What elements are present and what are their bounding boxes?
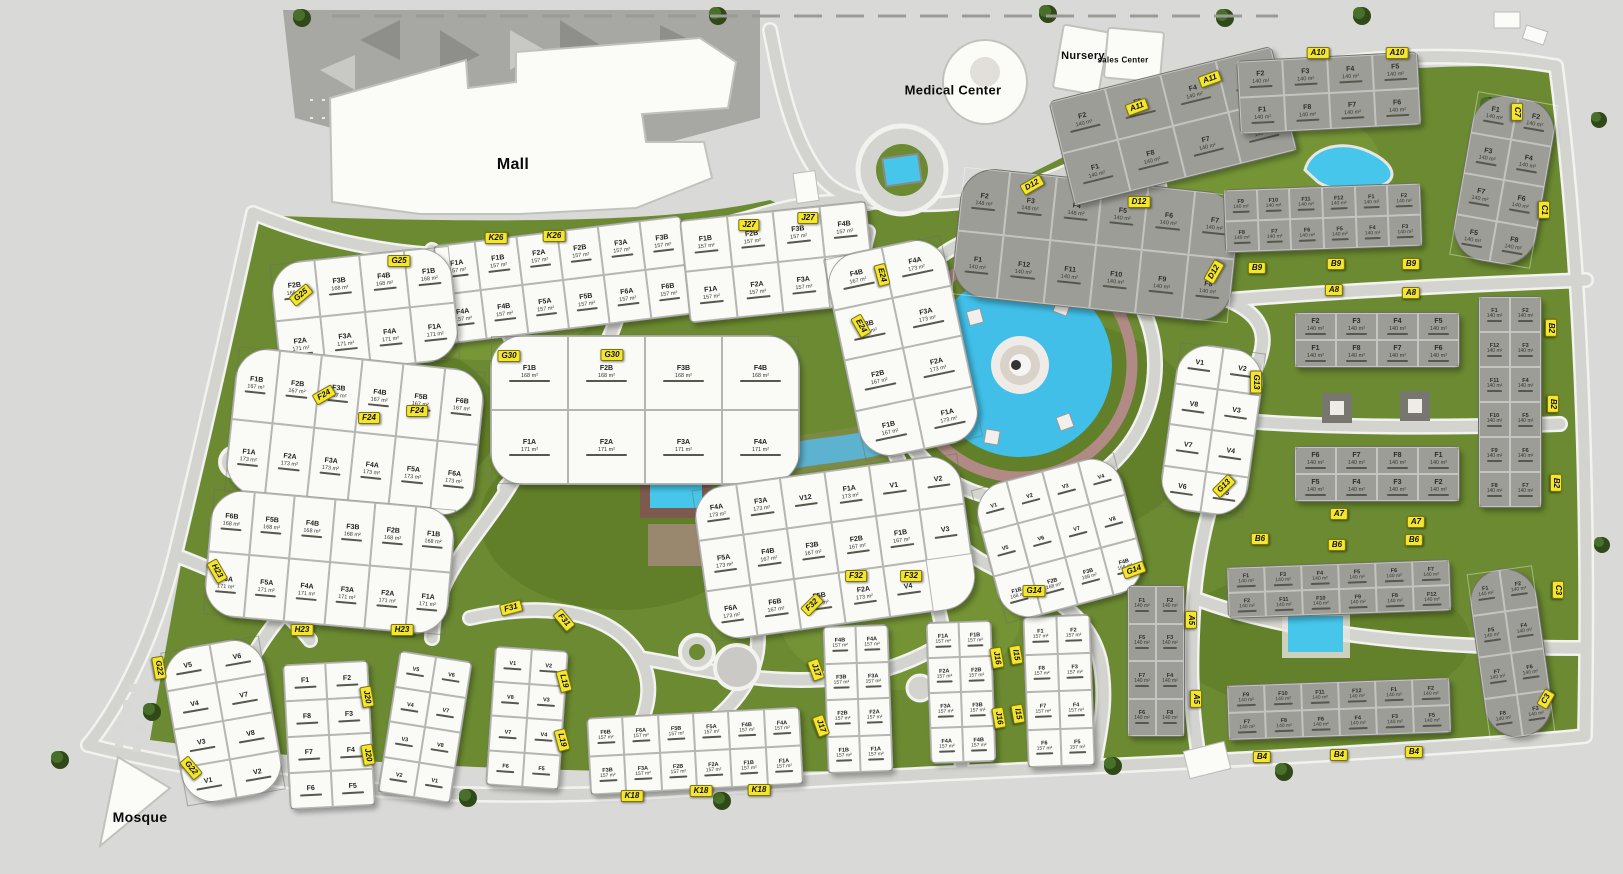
zone-marker-B4[interactable]: B4 — [1405, 746, 1423, 758]
unit-cell: F6140 m² — [1302, 709, 1340, 737]
unit-name: F7 — [305, 748, 314, 756]
unit-name: V3 — [941, 526, 951, 535]
unit-area: 140 m² — [1107, 278, 1125, 286]
unit-cell: F2140 m² — [1387, 184, 1421, 216]
unit-area: 140 m² — [1162, 716, 1178, 721]
roof-strip — [1066, 676, 1083, 679]
roof-strip — [1387, 494, 1408, 496]
zone-marker-F32[interactable]: F32 — [845, 570, 867, 582]
zone-marker-B9[interactable]: B9 — [1248, 262, 1266, 274]
roof-strip — [1387, 467, 1408, 469]
cluster-B6[interactable]: F1140 m²F3140 m²F4140 m²F5140 m²F6140 m²… — [1226, 559, 1452, 619]
roof-strip — [632, 739, 650, 742]
unit-name: F4 — [347, 746, 356, 754]
roof-strip — [1266, 240, 1283, 243]
unit-area: 157 m² — [739, 728, 755, 734]
unit-cell: F5140 m² — [1510, 402, 1541, 437]
unit-cell: F1B157 m² — [827, 735, 860, 773]
unit-area: 140 m² — [1159, 219, 1177, 227]
unit-cell: F1B168 m² — [410, 506, 456, 572]
unit-area: 140 m² — [1254, 114, 1271, 121]
roof-strip — [669, 775, 687, 778]
unit-name: F8 — [303, 712, 312, 720]
unit-cell: F4140 m² — [1504, 139, 1552, 187]
unit-cell: F3A157 m² — [929, 692, 962, 728]
unit-area: 157 m² — [937, 674, 953, 680]
unit-cell: F3140 m² — [1388, 215, 1422, 247]
unit-cell: F8140 m² — [1265, 710, 1303, 738]
roof-strip — [389, 778, 408, 783]
unit-cell: F6157 m² — [1027, 728, 1061, 767]
roof-strip — [338, 719, 360, 722]
unit-area: 157 m² — [671, 769, 687, 775]
cluster-K18[interactable]: F6B157 m²F6A157 m²F5B157 m²F5A157 m²F4B1… — [586, 706, 804, 795]
unit-cell: F2A171 m² — [568, 410, 645, 484]
cluster-G30[interactable]: F1B168 m²F2B168 m²F3B168 m²F4B168 m²F1A1… — [490, 335, 800, 485]
unit-name: F5 — [1434, 318, 1442, 326]
cluster-A10[interactable]: F2140 m²F3140 m²F4140 m²F5140 m²F1140 m²… — [1236, 51, 1422, 134]
fountain-pool — [882, 154, 922, 187]
roof-strip — [1224, 414, 1247, 419]
zone-marker-G14[interactable]: G14 — [1022, 585, 1045, 597]
unit-area: 157 m² — [938, 709, 954, 715]
roof-strip — [1397, 235, 1414, 238]
roof-strip — [1428, 467, 1449, 469]
unit-cell: F3140 m² — [1464, 132, 1512, 180]
unit-cell: V5 — [395, 651, 436, 692]
roof-strip — [1396, 204, 1413, 207]
unit-area: 157 m² — [967, 638, 983, 644]
roof-strip — [897, 591, 921, 596]
roof-strip — [1348, 606, 1367, 609]
unit-name: V8 — [507, 695, 514, 701]
roof-strip — [599, 779, 617, 782]
unit-area: 140 m² — [1518, 349, 1534, 354]
roof-strip — [865, 685, 882, 688]
zone-marker-K18[interactable]: K18 — [621, 790, 644, 802]
zone-marker-A8[interactable]: A8 — [1325, 284, 1343, 296]
unit-cell: F2140 m² — [1412, 678, 1450, 706]
unit-cell: F4B168 m² — [722, 336, 799, 410]
unit-name: F2A — [600, 439, 613, 447]
unit-name: F8 — [1393, 452, 1401, 460]
unit-area: 140 m² — [1342, 73, 1359, 80]
zone-marker-A8[interactable]: A8 — [1402, 287, 1420, 299]
unit-name: V8 — [246, 730, 256, 739]
cluster-B2[interactable]: F1140 m²F2140 m²F12140 m²F3140 m²F11140 … — [1478, 296, 1542, 508]
unit-cell: V2 — [378, 756, 419, 797]
unit-cell: F3A157 m² — [598, 221, 645, 275]
unit-cell: F6A173 m² — [430, 441, 479, 518]
unit-area: 140 m² — [1162, 604, 1178, 609]
unit-cell: F5A157 m² — [522, 280, 569, 334]
unit-area: 171 m² — [675, 447, 692, 453]
unit-cell: F1157 m² — [1023, 616, 1057, 655]
roof-strip — [422, 545, 443, 549]
roof-strip — [868, 758, 885, 761]
unit-area: 168 m² — [598, 373, 615, 379]
unit-area: 140 m² — [1162, 679, 1178, 684]
zone-marker-G30[interactable]: G30 — [600, 349, 623, 361]
unit-name: F8 — [1352, 345, 1360, 353]
unit-cell: F3B157 m² — [589, 755, 626, 795]
roof-strip — [703, 736, 721, 739]
unit-area: 140 m² — [1487, 454, 1503, 459]
unit-cell: V1 — [869, 459, 920, 516]
unit-cell: F6B157 m² — [587, 717, 624, 757]
roof-strip — [968, 679, 985, 682]
unit-name: F7 — [1352, 452, 1360, 460]
unit-name: V8 — [1189, 400, 1199, 409]
unit-cell: F5140 m² — [1323, 217, 1357, 249]
roof-strip — [1251, 120, 1275, 123]
unit-cell: F2140 m² — [1510, 297, 1541, 332]
unit-cell: F2B157 m² — [960, 656, 993, 692]
unit-name: V5 — [183, 662, 193, 671]
unit-area: 140 m² — [1487, 489, 1503, 494]
zone-marker-C7[interactable]: C7 — [1511, 103, 1523, 121]
roof-strip — [663, 454, 704, 456]
unit-cell: F6140 m² — [1128, 699, 1156, 737]
cluster-J17[interactable]: F4B157 m²F4A157 m²F3B157 m²F3A157 m²F2B1… — [822, 624, 893, 774]
unit-area: 157 m² — [1037, 747, 1053, 753]
unit-cell: F6 — [486, 750, 524, 787]
unit-cell: F6140 m² — [1374, 88, 1421, 126]
unit-cell: F11140 m² — [1301, 682, 1339, 710]
zone-marker-A7[interactable]: A7 — [1407, 516, 1425, 528]
unit-area: 140 m² — [1307, 326, 1324, 332]
unit-name: V4 — [406, 702, 414, 709]
roof-strip — [971, 749, 988, 752]
roof-strip — [1487, 355, 1503, 357]
roof-strip — [1428, 494, 1449, 496]
roof-strip — [1305, 333, 1326, 335]
unit-name: F1 — [301, 676, 310, 684]
zone-marker-B6[interactable]: B6 — [1405, 534, 1423, 546]
zone-marker-G25[interactable]: G25 — [387, 255, 410, 267]
zone-marker-A10[interactable]: A10 — [1307, 47, 1330, 59]
zone-marker-K18[interactable]: K18 — [690, 785, 713, 797]
roof-strip — [1487, 320, 1503, 322]
unit-cell: F11140 m² — [1043, 240, 1096, 308]
unit-area: 157 m² — [1068, 708, 1084, 714]
roof-strip — [425, 783, 444, 788]
unit-cell: F7140 m² — [1456, 173, 1504, 221]
unit-cell: V1 — [1175, 342, 1223, 389]
roof-strip — [738, 734, 756, 737]
unit-cell: F7140 m² — [1228, 712, 1266, 740]
roof-strip — [832, 650, 849, 653]
roof-strip — [1518, 390, 1534, 392]
unit-name: F3A — [677, 439, 690, 447]
unit-cell: F4A157 m² — [930, 727, 963, 763]
unit-cell: F4140 m² — [1356, 216, 1390, 248]
unit-area: 140 m² — [1389, 106, 1406, 113]
cluster-A8[interactable]: F2140 m²F3140 m²F4140 m²F5140 m²F1140 m²… — [1294, 312, 1460, 368]
pool-southeast — [1288, 616, 1343, 652]
unit-area: 157 m² — [1067, 670, 1083, 676]
unit-cell: F4A171 m² — [722, 410, 799, 484]
unit-cell: F6B168 m² — [208, 489, 254, 555]
roof-strip — [1518, 320, 1534, 322]
cluster-L19[interactable]: V1V2V8V3V7V4F6F5 — [485, 646, 569, 791]
zone-marker-B2[interactable]: B2 — [1550, 474, 1562, 492]
unit-area: 140 m² — [1348, 460, 1365, 466]
roof-strip — [537, 704, 556, 707]
unit-cell: F7140 m² — [1510, 472, 1541, 507]
unit-cell: F5B157 m² — [563, 275, 610, 329]
roof-strip — [836, 759, 853, 762]
unit-cell: F2140 m² — [1295, 313, 1336, 340]
unit-name: F5 — [348, 782, 357, 790]
cluster-I15[interactable]: F1157 m²F2157 m²F8157 m²F3157 m²F7157 m²… — [1022, 614, 1095, 768]
roof-strip — [220, 527, 241, 531]
unit-cell: F5140 m² — [1295, 474, 1336, 501]
cluster-H23[interactable]: F6B168 m²F5B168 m²F4B168 m²F3B168 m²F2B1… — [202, 488, 457, 637]
roof-strip — [867, 721, 884, 724]
unit-name: V3 — [197, 738, 207, 747]
roof-strip — [1311, 582, 1330, 585]
zone-marker-J27[interactable]: J27 — [738, 219, 759, 231]
unit-cell: F4A157 m² — [764, 708, 801, 748]
unit-cell: F8140 m² — [1181, 255, 1234, 323]
unit-name: V1 — [203, 777, 213, 786]
zone-marker-K26[interactable]: K26 — [485, 232, 508, 244]
unit-area: 140 m² — [1307, 460, 1324, 466]
unit-cell: F5 — [522, 752, 560, 789]
unit-area: 140 m² — [1487, 314, 1503, 319]
zone-marker-B6[interactable]: B6 — [1328, 539, 1346, 551]
unit-area: 140 m² — [1487, 419, 1503, 424]
roof-strip — [1176, 449, 1199, 454]
unit-area: 140 m² — [1350, 600, 1366, 606]
unit-area: 157 m² — [866, 679, 882, 685]
zone-marker-B2[interactable]: B2 — [1547, 395, 1559, 413]
roof-strip — [1135, 610, 1149, 612]
unit-name: V2 — [1237, 365, 1247, 374]
roof-strip — [406, 673, 425, 678]
zone-marker-D12[interactable]: D12 — [1128, 196, 1151, 208]
unit-name: F2 — [1311, 318, 1319, 326]
unit-area: 140 m² — [1299, 111, 1316, 118]
unit-area: 140 m² — [1233, 204, 1249, 210]
unit-area: 140 m² — [1266, 203, 1282, 209]
zone-marker-H23[interactable]: H23 — [291, 624, 314, 636]
unit-area: 140 m² — [1487, 349, 1503, 354]
unit-area: 171 m² — [752, 447, 769, 453]
zone-marker-B9[interactable]: B9 — [1327, 258, 1345, 270]
unit-cell: F3A171 m² — [645, 410, 722, 484]
roof-strip — [436, 713, 455, 718]
unit-area: 140 m² — [1430, 487, 1447, 493]
zone-marker-A10[interactable]: A10 — [1386, 47, 1409, 59]
zone-marker-C3[interactable]: C3 — [1552, 581, 1564, 599]
roof-strip — [833, 686, 850, 689]
roof-strip — [1135, 722, 1149, 724]
unit-name: F3B — [677, 365, 690, 373]
unit-name: F5 — [538, 766, 545, 772]
unit-area: 157 m² — [969, 673, 985, 679]
unit-area: 140 m² — [1153, 283, 1171, 291]
roof-strip — [1487, 390, 1503, 392]
roof-strip — [835, 723, 852, 726]
zone-marker-B2[interactable]: B2 — [1545, 319, 1557, 337]
unit-area: 148 m² — [1067, 209, 1085, 217]
zone-marker-K26[interactable]: K26 — [543, 230, 566, 242]
zone-marker-K18[interactable]: K18 — [748, 784, 771, 796]
zone-marker-B4[interactable]: B4 — [1330, 749, 1348, 761]
zone-marker-F24[interactable]: F24 — [406, 405, 428, 417]
roof-strip — [1385, 579, 1404, 582]
unit-cell: F2140 m² — [1499, 565, 1538, 611]
unit-area: 157 m² — [1066, 633, 1082, 639]
unit-area: 140 m² — [1349, 694, 1365, 700]
unit-name: F6 — [502, 764, 509, 770]
unit-area: 157 m² — [741, 766, 757, 772]
roof-strip — [1364, 236, 1381, 239]
roof-strip — [1249, 84, 1273, 87]
roof-strip — [586, 380, 627, 382]
unit-cell: F1B157 m² — [680, 216, 732, 272]
roof-strip — [296, 721, 318, 724]
unit-area: 140 m² — [1424, 597, 1440, 603]
unit-cell: F4140 m² — [1339, 708, 1377, 736]
roof-strip — [1238, 609, 1257, 612]
cluster-J16[interactable]: F1A157 m²F1B157 m²F2A157 m²F2B157 m²F3A1… — [926, 620, 997, 764]
unit-cell: F6140 m² — [1510, 437, 1541, 472]
roof-strip — [503, 667, 522, 670]
zone-marker-G30[interactable]: G30 — [497, 350, 520, 362]
unit-name: F6 — [306, 784, 315, 792]
roof-strip — [1135, 685, 1149, 687]
roof-strip — [1299, 239, 1316, 242]
unit-area: 140 m² — [1313, 722, 1329, 728]
zone-marker-B6[interactable]: B6 — [1251, 533, 1269, 545]
unit-name: V2 — [545, 663, 552, 669]
unit-area: 157 m² — [704, 730, 720, 736]
zone-marker-A5[interactable]: A5 — [1190, 690, 1202, 708]
unit-cell: F5A157 m² — [693, 711, 730, 751]
unit-cell: F2B157 m² — [826, 699, 859, 737]
zone-marker-G13[interactable]: G13 — [1250, 370, 1262, 393]
zone-marker-H23[interactable]: H23 — [391, 624, 414, 636]
zone-marker-A7[interactable]: A7 — [1330, 508, 1348, 520]
roof-strip — [740, 380, 781, 382]
unit-area: 171 m² — [521, 447, 538, 453]
unit-cell: F8140 m² — [1490, 221, 1538, 269]
zone-marker-B4[interactable]: B4 — [1253, 751, 1271, 763]
zone-marker-F24[interactable]: F24 — [358, 412, 380, 424]
unit-cell: F5140 m² — [1338, 563, 1376, 589]
cluster-B4[interactable]: F9140 m²F10140 m²F11140 m²F12140 m²F1140… — [1226, 677, 1452, 741]
unit-cell: F6A173 m² — [706, 585, 757, 642]
unit-cell: F1A157 m² — [859, 734, 892, 772]
unit-cell: V4 — [1206, 430, 1254, 477]
roof-strip — [1296, 118, 1320, 121]
cluster-A8[interactable]: F6140 m²F7140 m²F8140 m²F1140 m²F5140 m²… — [1294, 446, 1460, 502]
unit-area: 140 m² — [1423, 572, 1439, 578]
unit-cell: F5140 m² — [1418, 313, 1459, 340]
cluster-A5[interactable]: F1140 m²F2140 m²F5140 m²F3140 m²F7140 m²… — [1127, 585, 1185, 737]
roof-strip — [496, 770, 515, 773]
roof-strip — [1312, 607, 1331, 610]
unit-cell: F3157 m² — [1058, 652, 1092, 691]
roof-strip — [1170, 491, 1193, 496]
unit-cell: F6140 m² — [1295, 447, 1336, 474]
unit-area: 140 m² — [1276, 723, 1292, 729]
zone-marker-B9[interactable]: B9 — [1402, 258, 1420, 270]
medical-center-label: Medical Center — [905, 83, 1002, 98]
unit-cell: F10140 m² — [1089, 245, 1142, 313]
unit-cell: F4140 m² — [1156, 661, 1184, 699]
unit-cell: F1140 m² — [1375, 679, 1413, 707]
zone-marker-F32[interactable]: F32 — [900, 570, 922, 582]
unit-name: F1 — [1434, 452, 1442, 460]
roof-strip — [1518, 355, 1534, 357]
roof-strip — [1384, 77, 1408, 80]
unit-area: 140 m² — [1518, 384, 1534, 389]
unit-cell: F8140 m² — [1377, 447, 1418, 474]
unit-cell: V3 — [384, 721, 425, 762]
unit-area: 157 m² — [1035, 709, 1051, 715]
unit-cell: F11140 m² — [1289, 187, 1323, 219]
unit-area: 157 m² — [835, 717, 851, 723]
roof-strip — [864, 648, 881, 651]
unit-cell: F6B167 m² — [437, 368, 486, 445]
unit-area: 140 m² — [1518, 314, 1534, 319]
cluster-B9[interactable]: F9140 m²F10140 m²F11140 m²F12140 m²F1140… — [1223, 183, 1423, 254]
unit-area: 140 m² — [1276, 602, 1292, 608]
zone-marker-J27[interactable]: J27 — [797, 212, 818, 224]
roof-strip — [795, 502, 819, 507]
unit-cell: F2140 m² — [1156, 586, 1184, 624]
unit-name: V4 — [1226, 447, 1236, 456]
unit-cell: F1A157 m² — [766, 745, 803, 785]
mall-label: Mall — [497, 156, 529, 174]
unit-area: 140 m² — [1307, 353, 1324, 359]
unit-cell: F12140 m² — [1413, 585, 1451, 611]
unit-name: V1 — [1195, 359, 1205, 368]
roof-strip — [740, 454, 781, 456]
unit-cell: F1140 m² — [1128, 586, 1156, 624]
unit-name: V6 — [448, 672, 456, 679]
unit-name: F5 — [1311, 479, 1319, 487]
unit-name: V3 — [543, 697, 550, 703]
unit-area: 171 m² — [598, 447, 615, 453]
unit-cell: F1 — [283, 663, 327, 701]
roof-strip — [1135, 647, 1149, 649]
unit-cell: F10140 m² — [1257, 188, 1291, 220]
unit-area: 140 m² — [1298, 202, 1314, 208]
roof-strip — [1182, 408, 1205, 413]
zone-marker-C1[interactable]: C1 — [1538, 201, 1550, 219]
zone-marker-A5[interactable]: A5 — [1185, 611, 1197, 629]
unit-cell: F8140 m² — [1225, 220, 1259, 252]
unit-cell: F1140 m² — [1295, 340, 1336, 367]
roof-strip — [1387, 360, 1408, 362]
masterplan-map: Mall Medical Center Nursery sales Center… — [0, 0, 1623, 874]
roof-strip — [1422, 603, 1441, 606]
unit-cell: V6 — [431, 657, 472, 698]
cluster-J20[interactable]: F1F2F8F3F7F4F6F5 — [282, 660, 376, 810]
unit-area: 140 m² — [1430, 353, 1447, 359]
unit-cell: F1A157 m² — [927, 622, 960, 658]
unit-name: F4 — [1352, 479, 1360, 487]
unit-cell: F1140 m² — [951, 230, 1004, 298]
roof-strip — [1294, 82, 1318, 85]
roof-strip — [1305, 494, 1326, 496]
unit-cell: F2B168 m² — [370, 503, 416, 569]
